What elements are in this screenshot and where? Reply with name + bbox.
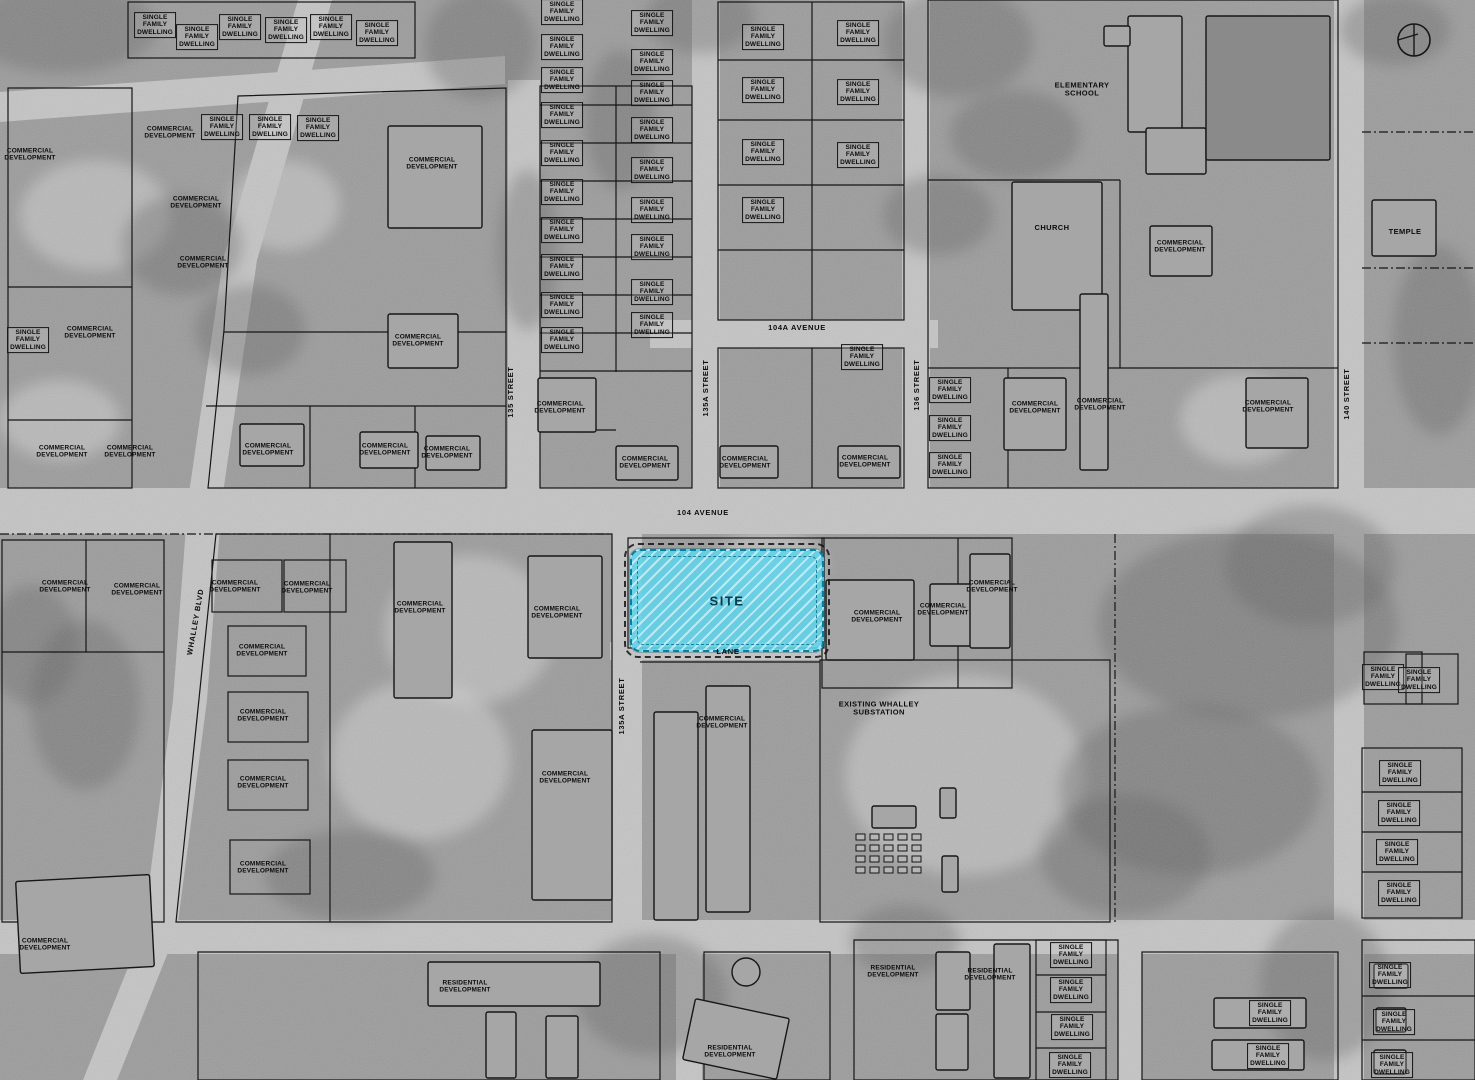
parcel-label-sfd: SINGLE FAMILY DWELLING bbox=[356, 20, 398, 46]
parcel-label-school: ELEMENTARY SCHOOL bbox=[1055, 82, 1110, 99]
parcel-label-cd: COMMERCIAL DEVELOPMENT bbox=[359, 443, 410, 458]
parcel-label-temple: TEMPLE bbox=[1389, 228, 1422, 236]
parcel-label-sfd: SINGLE FAMILY DWELLING bbox=[631, 234, 673, 260]
parcel-label-sfd: SINGLE FAMILY DWELLING bbox=[541, 102, 583, 128]
parcel-label-sfd: SINGLE FAMILY DWELLING bbox=[541, 292, 583, 318]
parcel-label-cd: COMMERCIAL DEVELOPMENT bbox=[1009, 401, 1060, 416]
parcel-label-sfd: SINGLE FAMILY DWELLING bbox=[1249, 1000, 1291, 1026]
parcel-label-sfd: SINGLE FAMILY DWELLING bbox=[1050, 977, 1092, 1003]
parcel-label-sfd: SINGLE FAMILY DWELLING bbox=[631, 312, 673, 338]
parcel-label-church: CHURCH bbox=[1035, 224, 1070, 232]
parcel-label-sfd: SINGLE FAMILY DWELLING bbox=[134, 12, 176, 38]
parcel-label-cd: COMMERCIAL DEVELOPMENT bbox=[839, 455, 890, 470]
parcel-label-sfd: SINGLE FAMILY DWELLING bbox=[929, 377, 971, 403]
parcel-label-sub: EXISTING WHALLEY SUBSTATION bbox=[839, 701, 920, 718]
parcel-label-cd: COMMERCIAL DEVELOPMENT bbox=[394, 601, 445, 616]
parcel-label-sfd: SINGLE FAMILY DWELLING bbox=[1049, 1052, 1091, 1078]
parcel-label-cd: COMMERCIAL DEVELOPMENT bbox=[237, 861, 288, 876]
parcel-label-sfd: SINGLE FAMILY DWELLING bbox=[249, 114, 291, 140]
parcel-label-cd: COMMERCIAL DEVELOPMENT bbox=[917, 603, 968, 618]
parcel-label-sfd: SINGLE FAMILY DWELLING bbox=[837, 142, 879, 168]
parcel-label-cd: COMMERCIAL DEVELOPMENT bbox=[237, 776, 288, 791]
parcel-label-cd: COMMERCIAL DEVELOPMENT bbox=[539, 771, 590, 786]
parcel-label-sfd: SINGLE FAMILY DWELLING bbox=[841, 344, 883, 370]
parcel-label-sfd: SINGLE FAMILY DWELLING bbox=[631, 197, 673, 223]
parcel-label-sfd: SINGLE FAMILY DWELLING bbox=[1376, 839, 1418, 865]
parcel-label-cd: COMMERCIAL DEVELOPMENT bbox=[36, 445, 87, 460]
parcel-label-cd: COMMERCIAL DEVELOPMENT bbox=[421, 446, 472, 461]
parcel-label-sfd: SINGLE FAMILY DWELLING bbox=[1378, 800, 1420, 826]
parcel-label-sfd: SINGLE FAMILY DWELLING bbox=[541, 140, 583, 166]
parcel-label-cd: COMMERCIAL DEVELOPMENT bbox=[144, 126, 195, 141]
street-label: LANE bbox=[716, 648, 739, 656]
street-label: 104A AVENUE bbox=[768, 324, 826, 332]
parcel-label-sfd: SINGLE FAMILY DWELLING bbox=[541, 0, 583, 25]
context-map: SITE SINGLE FAMILY DWELLINGSINGLE FAMILY… bbox=[0, 0, 1475, 1080]
street-label: WHALLEY BLVD bbox=[186, 588, 206, 656]
street-label: 136 STREET bbox=[913, 359, 921, 410]
parcel-label-sfd: SINGLE FAMILY DWELLING bbox=[1373, 1009, 1415, 1035]
parcel-label-cd: COMMERCIAL DEVELOPMENT bbox=[4, 148, 55, 163]
parcel-label-cd: COMMERCIAL DEVELOPMENT bbox=[242, 443, 293, 458]
parcel-label-sfd: SINGLE FAMILY DWELLING bbox=[742, 197, 784, 223]
parcel-label-sfd: SINGLE FAMILY DWELLING bbox=[176, 24, 218, 50]
parcel-label-sfd: SINGLE FAMILY DWELLING bbox=[1247, 1043, 1289, 1069]
parcel-label-cd: COMMERCIAL DEVELOPMENT bbox=[111, 583, 162, 598]
parcel-label-sfd: SINGLE FAMILY DWELLING bbox=[1379, 760, 1421, 786]
parcel-label-cd: COMMERCIAL DEVELOPMENT bbox=[39, 580, 90, 595]
street-label: 104 AVENUE bbox=[677, 509, 729, 517]
parcel-label-cd: COMMERCIAL DEVELOPMENT bbox=[534, 401, 585, 416]
parcel-label-sfd: SINGLE FAMILY DWELLING bbox=[541, 327, 583, 353]
parcel-label-cd: COMMERCIAL DEVELOPMENT bbox=[1074, 398, 1125, 413]
parcel-label-cd: COMMERCIAL DEVELOPMENT bbox=[104, 445, 155, 460]
parcel-label-sfd: SINGLE FAMILY DWELLING bbox=[1398, 667, 1440, 693]
parcel-label-sfd: SINGLE FAMILY DWELLING bbox=[7, 327, 49, 353]
parcel-label-rd: RESIDENTIAL DEVELOPMENT bbox=[439, 980, 490, 995]
parcel-label-cd: COMMERCIAL DEVELOPMENT bbox=[966, 580, 1017, 595]
parcel-label-cd: COMMERCIAL DEVELOPMENT bbox=[237, 709, 288, 724]
street-label: 135A STREET bbox=[618, 677, 626, 734]
parcel-label-sfd: SINGLE FAMILY DWELLING bbox=[297, 115, 339, 141]
parcel-label-sfd: SINGLE FAMILY DWELLING bbox=[631, 80, 673, 106]
parcel-label-rd: RESIDENTIAL DEVELOPMENT bbox=[964, 968, 1015, 983]
parcel-label-sfd: SINGLE FAMILY DWELLING bbox=[837, 20, 879, 46]
parcel-label-cd: COMMERCIAL DEVELOPMENT bbox=[696, 716, 747, 731]
parcel-label-sfd: SINGLE FAMILY DWELLING bbox=[742, 77, 784, 103]
parcel-label-sfd: SINGLE FAMILY DWELLING bbox=[929, 415, 971, 441]
parcel-label-rd: RESIDENTIAL DEVELOPMENT bbox=[867, 965, 918, 980]
parcel-label-sfd: SINGLE FAMILY DWELLING bbox=[631, 117, 673, 143]
parcel-label-cd: COMMERCIAL DEVELOPMENT bbox=[851, 610, 902, 625]
parcel-label-sfd: SINGLE FAMILY DWELLING bbox=[929, 452, 971, 478]
parcel-label-sfd: SINGLE FAMILY DWELLING bbox=[1051, 1014, 1093, 1040]
parcel-label-sfd: SINGLE FAMILY DWELLING bbox=[541, 34, 583, 60]
parcel-label-sfd: SINGLE FAMILY DWELLING bbox=[541, 179, 583, 205]
parcel-label-cd: COMMERCIAL DEVELOPMENT bbox=[719, 456, 770, 471]
parcel-label-cd: COMMERCIAL DEVELOPMENT bbox=[19, 938, 70, 953]
parcel-label-sfd: SINGLE FAMILY DWELLING bbox=[631, 157, 673, 183]
parcel-label-cd: COMMERCIAL DEVELOPMENT bbox=[170, 196, 221, 211]
parcel-label-sfd: SINGLE FAMILY DWELLING bbox=[219, 14, 261, 40]
parcel-label-sfd: SINGLE FAMILY DWELLING bbox=[631, 279, 673, 305]
parcel-label-sfd: SINGLE FAMILY DWELLING bbox=[742, 24, 784, 50]
parcel-label-sfd: SINGLE FAMILY DWELLING bbox=[742, 139, 784, 165]
parcel-label-cd: COMMERCIAL DEVELOPMENT bbox=[406, 157, 457, 172]
parcel-label-sfd: SINGLE FAMILY DWELLING bbox=[837, 79, 879, 105]
parcel-label-cd: COMMERCIAL DEVELOPMENT bbox=[236, 644, 287, 659]
parcel-label-cd: COMMERCIAL DEVELOPMENT bbox=[64, 326, 115, 341]
parcel-label-sfd: SINGLE FAMILY DWELLING bbox=[1369, 962, 1411, 988]
street-label: 135A STREET bbox=[702, 359, 710, 416]
parcel-label-sfd: SINGLE FAMILY DWELLING bbox=[201, 114, 243, 140]
parcel-label-sfd: SINGLE FAMILY DWELLING bbox=[631, 49, 673, 75]
parcel-label-cd: COMMERCIAL DEVELOPMENT bbox=[209, 580, 260, 595]
street-label: 135 STREET bbox=[507, 366, 515, 417]
parcel-label-sfd: SINGLE FAMILY DWELLING bbox=[1371, 1052, 1413, 1078]
parcel-label-cd: COMMERCIAL DEVELOPMENT bbox=[177, 256, 228, 271]
parcel-label-sfd: SINGLE FAMILY DWELLING bbox=[541, 254, 583, 280]
parcel-label-cd: COMMERCIAL DEVELOPMENT bbox=[531, 606, 582, 621]
parcel-label-cd: COMMERCIAL DEVELOPMENT bbox=[1154, 240, 1205, 255]
parcel-label-sfd: SINGLE FAMILY DWELLING bbox=[1378, 880, 1420, 906]
parcel-label-sfd: SINGLE FAMILY DWELLING bbox=[631, 10, 673, 36]
parcel-label-cd: COMMERCIAL DEVELOPMENT bbox=[619, 456, 670, 471]
street-label: 140 STREET bbox=[1343, 368, 1351, 419]
parcel-label-cd: COMMERCIAL DEVELOPMENT bbox=[1242, 400, 1293, 415]
parcel-label-sfd: SINGLE FAMILY DWELLING bbox=[541, 217, 583, 243]
parcel-label-rd: RESIDENTIAL DEVELOPMENT bbox=[704, 1045, 755, 1060]
parcel-label-cd: COMMERCIAL DEVELOPMENT bbox=[281, 581, 332, 596]
parcel-label-sfd: SINGLE FAMILY DWELLING bbox=[541, 67, 583, 93]
parcel-label-sfd: SINGLE FAMILY DWELLING bbox=[265, 17, 307, 43]
label-layer: SINGLE FAMILY DWELLINGSINGLE FAMILY DWEL… bbox=[0, 0, 1475, 1080]
parcel-label-sfd: SINGLE FAMILY DWELLING bbox=[310, 14, 352, 40]
parcel-label-sfd: SINGLE FAMILY DWELLING bbox=[1050, 942, 1092, 968]
parcel-label-cd: COMMERCIAL DEVELOPMENT bbox=[392, 334, 443, 349]
